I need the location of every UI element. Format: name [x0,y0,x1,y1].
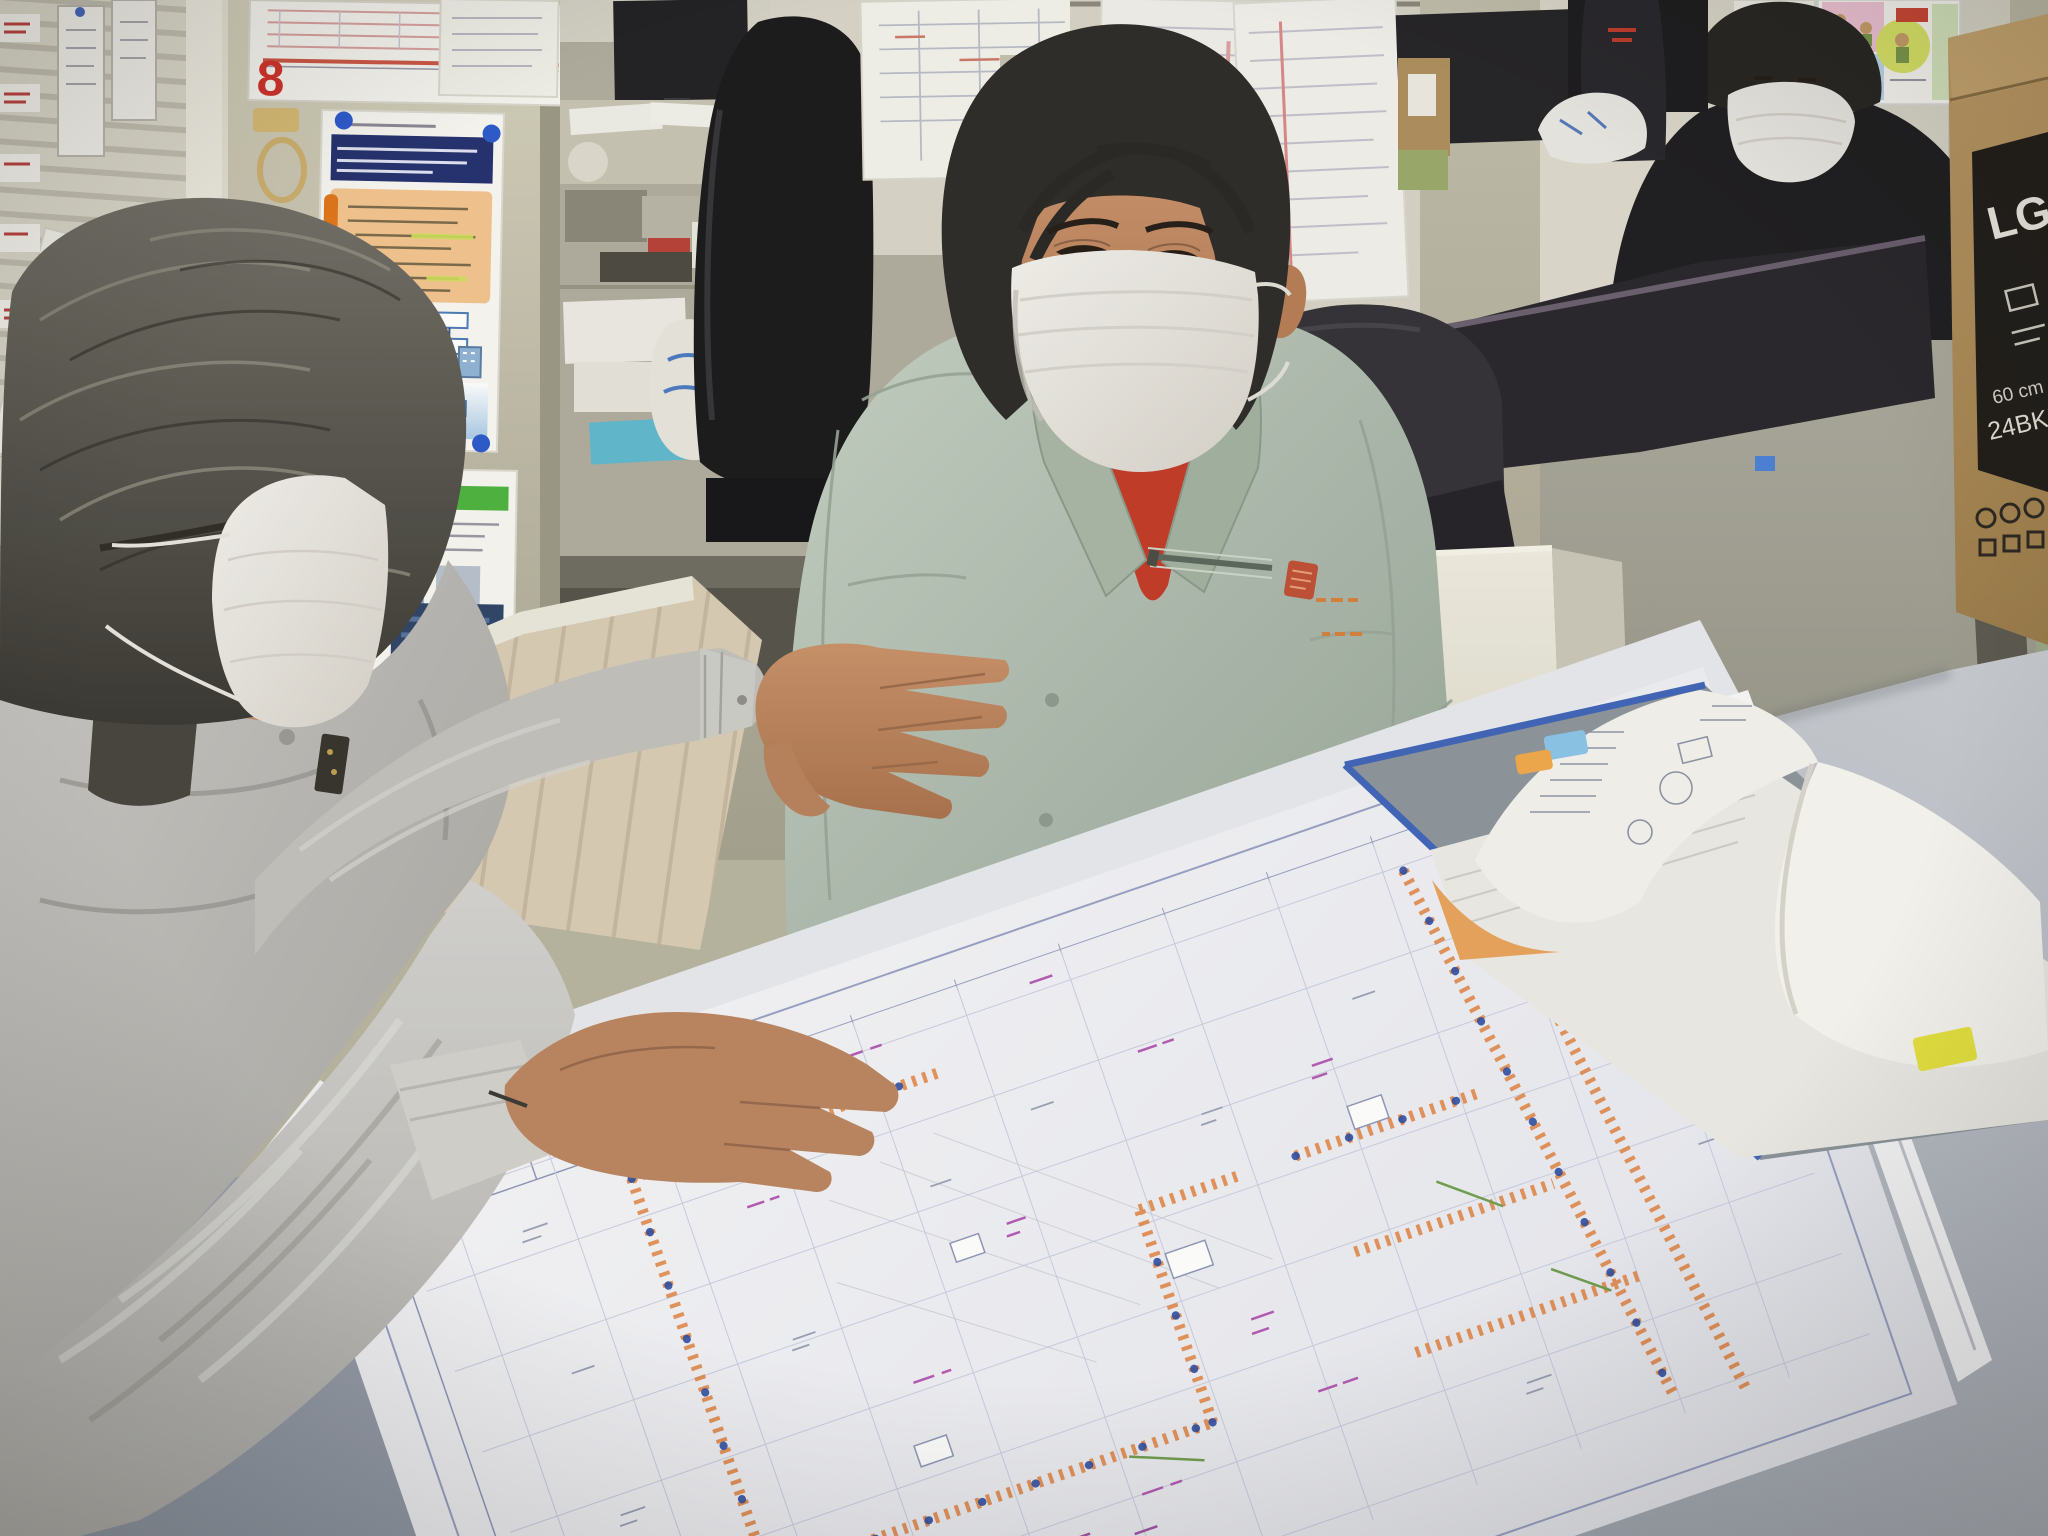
office-photo: 8 [0,0,2048,1536]
vignette [0,0,2048,1536]
office-scene: 8 [0,0,2048,1536]
